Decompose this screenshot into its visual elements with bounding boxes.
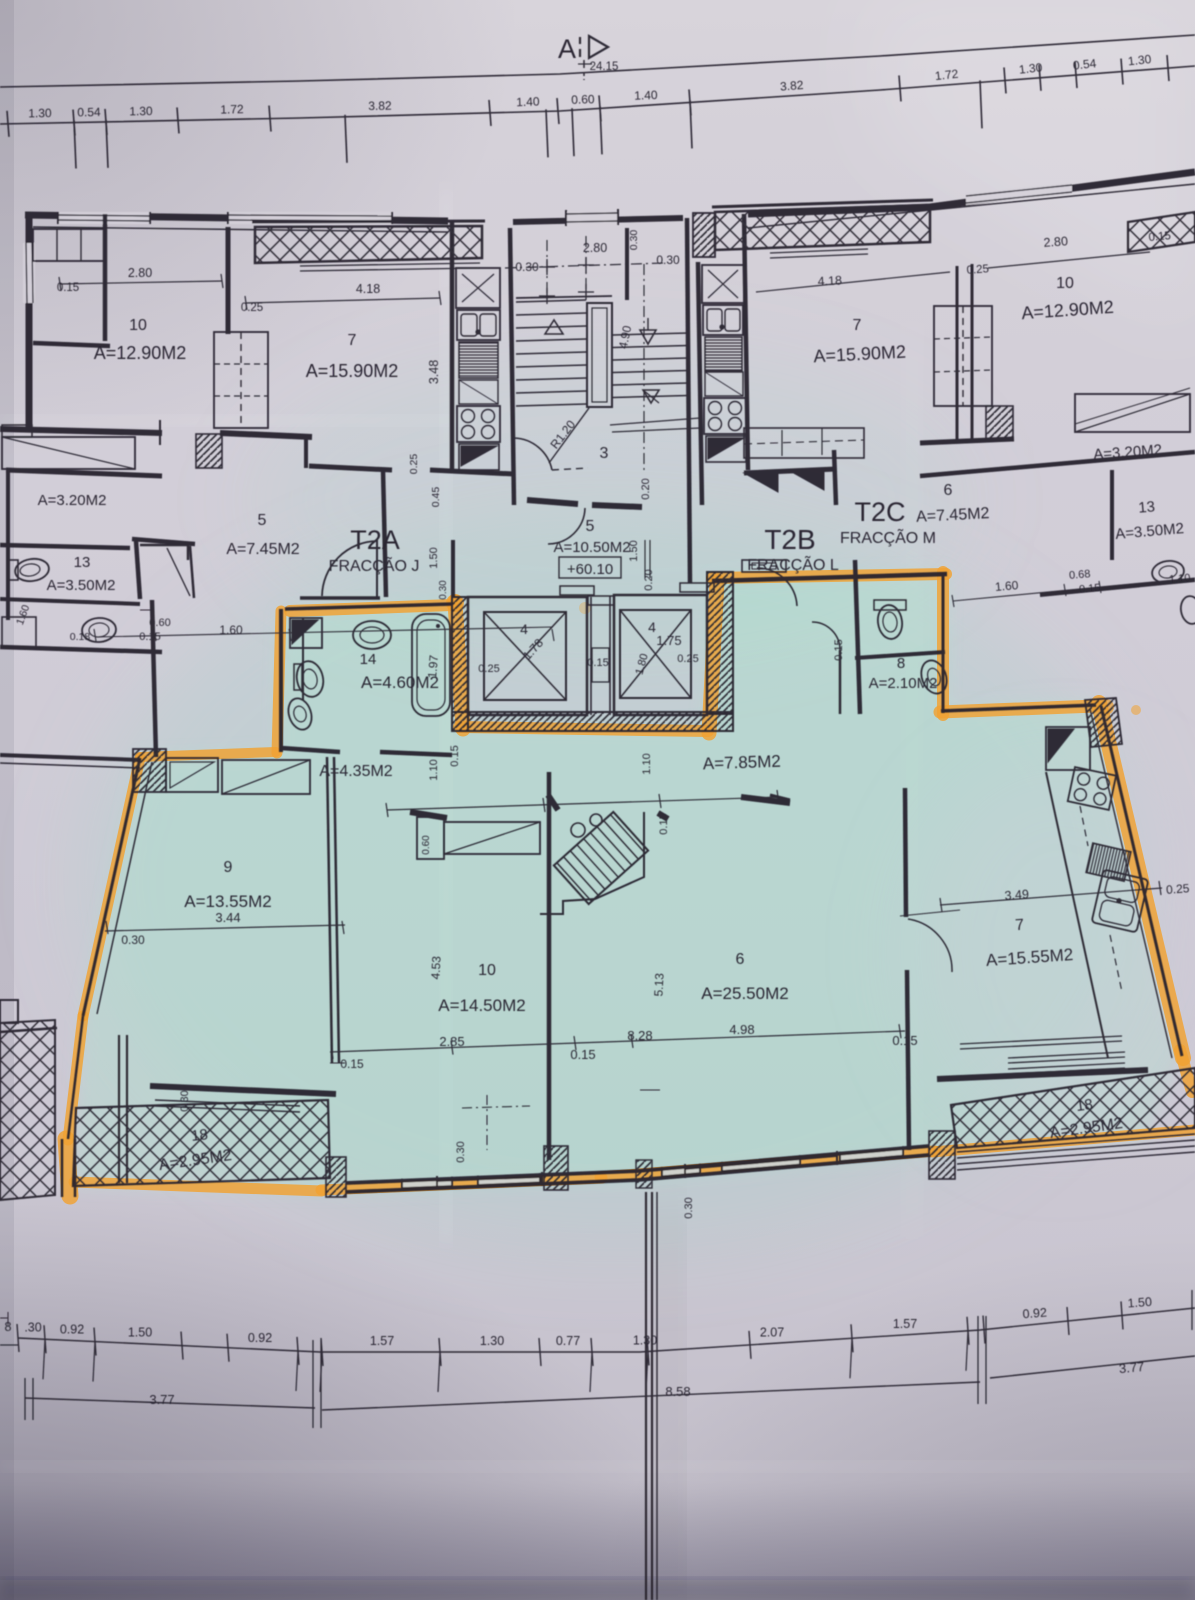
svg-text:0.60: 0.60 xyxy=(421,835,432,855)
svg-text:2.07: 2.07 xyxy=(760,1325,784,1339)
svg-text:A=3.20M2: A=3.20M2 xyxy=(38,492,107,509)
svg-text:1.72: 1.72 xyxy=(934,67,959,83)
svg-text:0.15: 0.15 xyxy=(587,657,608,669)
svg-text:7: 7 xyxy=(348,332,357,349)
svg-text:5: 5 xyxy=(586,518,595,535)
svg-text:1.40: 1.40 xyxy=(516,94,540,109)
svg-text:18: 18 xyxy=(190,1126,208,1145)
svg-text:A=2.10M2: A=2.10M2 xyxy=(869,675,938,692)
svg-text:0.18: 0.18 xyxy=(70,631,91,643)
svg-text:FRACÇÃO L: FRACÇÃO L xyxy=(747,554,839,574)
svg-text:0.15: 0.15 xyxy=(1079,582,1101,596)
svg-text:7: 7 xyxy=(853,317,862,334)
svg-text:0.15: 0.15 xyxy=(892,1033,917,1048)
svg-text:A=14.50M2: A=14.50M2 xyxy=(438,996,525,1015)
svg-text:0.30: 0.30 xyxy=(121,933,145,947)
svg-text:1.97: 1.97 xyxy=(425,654,441,679)
svg-text:1.75: 1.75 xyxy=(656,633,681,648)
svg-text:2.85: 2.85 xyxy=(439,1034,464,1049)
svg-text:0.25: 0.25 xyxy=(478,663,499,675)
svg-text:A=15.90M2: A=15.90M2 xyxy=(306,361,399,381)
svg-text:+60.10: +60.10 xyxy=(567,561,613,578)
svg-text:8.58: 8.58 xyxy=(665,1384,690,1399)
svg-text:1.30: 1.30 xyxy=(129,104,153,118)
svg-text:4: 4 xyxy=(520,621,528,637)
svg-text:13: 13 xyxy=(74,554,91,571)
svg-text:3.44: 3.44 xyxy=(215,910,240,925)
svg-text:A=7.45M2: A=7.45M2 xyxy=(226,541,299,558)
svg-text:3.49: 3.49 xyxy=(1004,887,1029,903)
svg-text:1.10: 1.10 xyxy=(641,753,653,774)
svg-text:T2A: T2A xyxy=(350,525,400,555)
svg-text:8: 8 xyxy=(897,655,905,672)
svg-text:2.80: 2.80 xyxy=(1043,234,1068,250)
svg-text:0.25: 0.25 xyxy=(966,263,989,277)
svg-text:0.30: 0.30 xyxy=(515,260,539,274)
svg-text:0.25: 0.25 xyxy=(408,454,420,475)
svg-text:0.30: 0.30 xyxy=(455,1141,467,1162)
svg-text:0.60: 0.60 xyxy=(571,92,595,107)
svg-text:2.80: 2.80 xyxy=(128,266,152,280)
svg-text:5.13: 5.13 xyxy=(651,972,666,996)
svg-text:4.18: 4.18 xyxy=(817,273,842,288)
svg-text:0.45: 0.45 xyxy=(430,487,442,508)
svg-text:0.30: 0.30 xyxy=(438,580,449,600)
svg-text:1.30: 1.30 xyxy=(480,1334,504,1348)
svg-text:FRACÇÃO J: FRACÇÃO J xyxy=(329,555,420,575)
svg-text:A=7.85M2: A=7.85M2 xyxy=(703,752,782,774)
svg-text:0.30: 0.30 xyxy=(683,1197,695,1218)
svg-text:0.68: 0.68 xyxy=(1069,568,1091,582)
svg-text:18: 18 xyxy=(1075,1096,1094,1115)
svg-text:0.30: 0.30 xyxy=(656,253,680,267)
svg-text:T2B: T2B xyxy=(764,524,815,555)
svg-text:0.15: 0.15 xyxy=(340,1057,364,1071)
svg-text:A=25.50M2: A=25.50M2 xyxy=(701,984,788,1003)
svg-text:3.77: 3.77 xyxy=(149,1392,174,1407)
svg-text:0.92: 0.92 xyxy=(60,1323,84,1337)
svg-text:10: 10 xyxy=(478,962,496,979)
svg-text:8.28: 8.28 xyxy=(627,1028,652,1043)
svg-text:A=3.50M2: A=3.50M2 xyxy=(47,577,116,594)
svg-text:T2C: T2C xyxy=(854,497,905,527)
svg-text:1.50: 1.50 xyxy=(628,540,640,561)
svg-text:1.60: 1.60 xyxy=(219,623,243,637)
svg-text:3: 3 xyxy=(600,445,609,462)
svg-text:A=4.35M2: A=4.35M2 xyxy=(319,763,392,780)
svg-text:A=12.90M2: A=12.90M2 xyxy=(94,343,187,363)
svg-text:4.18: 4.18 xyxy=(356,282,380,296)
svg-text:1.57: 1.57 xyxy=(370,1334,394,1348)
svg-text:1.30: 1.30 xyxy=(1127,52,1152,68)
svg-text:4: 4 xyxy=(648,619,656,635)
svg-text:10: 10 xyxy=(129,317,147,334)
svg-text:3.77: 3.77 xyxy=(1118,1359,1145,1376)
svg-text:3.82: 3.82 xyxy=(780,78,805,94)
svg-text:1.57: 1.57 xyxy=(893,1317,917,1331)
svg-text:10: 10 xyxy=(1056,275,1074,292)
svg-text:0.54: 0.54 xyxy=(1072,56,1097,72)
svg-text:1.30: 1.30 xyxy=(28,106,52,120)
svg-text:3.82: 3.82 xyxy=(368,99,392,113)
svg-text:1.10: 1.10 xyxy=(428,759,440,780)
svg-text:4.98: 4.98 xyxy=(729,1022,754,1037)
svg-text:6: 6 xyxy=(944,482,953,499)
svg-text:6: 6 xyxy=(736,951,745,968)
svg-text:0.25: 0.25 xyxy=(1166,881,1191,897)
svg-text:9: 9 xyxy=(224,859,233,876)
svg-text:0.15: 0.15 xyxy=(570,1047,595,1062)
svg-text:7: 7 xyxy=(1015,917,1025,935)
svg-text:0.15: 0.15 xyxy=(57,282,79,294)
svg-text:0.92: 0.92 xyxy=(1022,1306,1047,1322)
svg-text:2.80: 2.80 xyxy=(583,241,607,255)
svg-text:0.20: 0.20 xyxy=(640,478,652,499)
svg-text:13: 13 xyxy=(1138,498,1156,516)
svg-text:0.15: 0.15 xyxy=(139,631,160,643)
svg-text:0.30: 0.30 xyxy=(179,1090,191,1111)
svg-text:24.15: 24.15 xyxy=(590,61,619,73)
svg-text:4.53: 4.53 xyxy=(428,955,443,979)
svg-text:14: 14 xyxy=(360,651,377,668)
svg-text:1.30: 1.30 xyxy=(1018,60,1043,76)
svg-text:A=10.50M2: A=10.50M2 xyxy=(553,539,630,556)
svg-text:3.48: 3.48 xyxy=(427,360,441,384)
svg-text:FRACÇÃO M: FRACÇÃO M xyxy=(840,527,936,547)
svg-text:0.30: 0.30 xyxy=(628,230,640,251)
svg-text:1.72: 1.72 xyxy=(220,102,244,116)
svg-text:0.77: 0.77 xyxy=(556,1334,580,1348)
svg-text:0.25: 0.25 xyxy=(241,302,263,314)
svg-text:1.50: 1.50 xyxy=(428,547,440,568)
svg-text:1.50: 1.50 xyxy=(128,1326,152,1340)
svg-text:A=13.55M2: A=13.55M2 xyxy=(184,892,271,911)
svg-text:0.15: 0.15 xyxy=(1148,230,1171,244)
svg-text:1.40: 1.40 xyxy=(634,88,658,103)
svg-text:1.50: 1.50 xyxy=(1127,1295,1152,1311)
svg-text:.30: .30 xyxy=(24,1321,41,1335)
svg-text:0.25: 0.25 xyxy=(677,653,698,665)
svg-text:5: 5 xyxy=(258,512,267,529)
svg-text:0.54: 0.54 xyxy=(77,105,101,119)
svg-text:A: A xyxy=(558,34,576,64)
svg-text:1.60: 1.60 xyxy=(994,578,1019,594)
svg-text:0.92: 0.92 xyxy=(248,1331,272,1345)
svg-text:1.10: 1.10 xyxy=(1169,572,1191,586)
